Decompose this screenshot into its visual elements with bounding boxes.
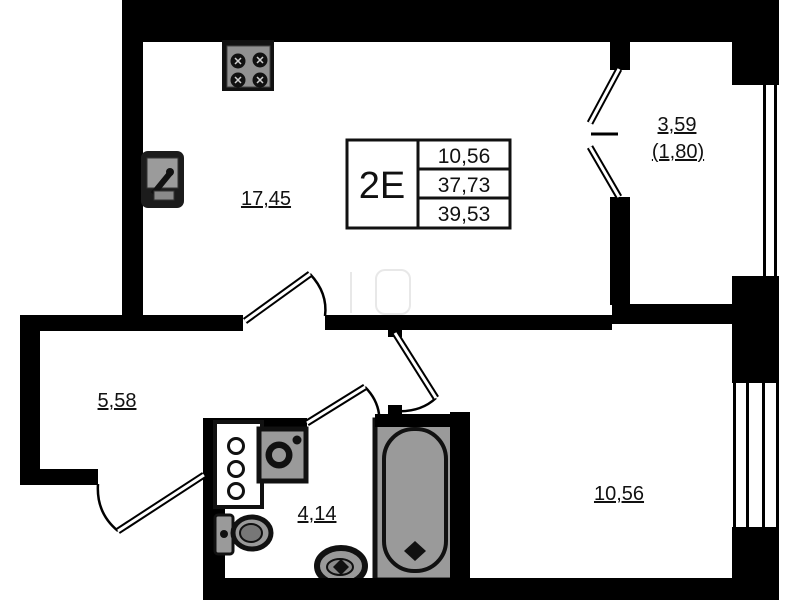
door-entrance [98,475,204,531]
wall-bedroom-door-stub-bottom [388,405,402,427]
wall-right-mid [732,276,779,383]
wall-top [122,0,779,42]
toilet-icon [215,515,271,554]
kitchen-sink-icon [141,151,184,208]
ghost-door-outline [351,270,410,314]
wall-hall-left [20,315,40,485]
wall-balcony-divider [610,197,630,305]
wall-bathroom-top-right [375,414,455,427]
door-hall-to-kitchen [245,274,325,321]
info-value-overall-area: 39,53 [438,203,491,226]
bedroom-window [733,383,779,527]
info-value-total-area: 37,73 [438,174,491,197]
unit-type-label: 2E [359,165,405,207]
wall-hall-bottom [20,469,98,485]
door-hall-to-bedroom [394,333,436,411]
wall-balcony-stub-top [610,42,630,70]
balcony-folding-door [590,69,619,197]
door-bathroom [307,387,379,423]
info-value-living-area: 10,56 [438,145,491,168]
floor-plan-drawing: 2E 10,56 37,73 39,53 17,45 5,58 4,14 10,… [0,0,799,600]
wall-balcony-bottom [612,304,733,324]
label-hallway-area: 5,58 [98,390,137,412]
wall-right-top [732,0,779,85]
washing-machine-icon [259,429,306,481]
wall-bottom [203,578,779,600]
label-balcony-reduced-area: (1,80) [652,141,704,163]
unit-info-box: 2E 10,56 37,73 39,53 [347,140,510,228]
wall-middle-right-segment [325,315,612,330]
label-bedroom-area: 10,56 [594,483,644,505]
wall-kitchen-left [122,0,143,330]
label-balcony-area: 3,59 [658,114,697,136]
bathtub [375,420,455,580]
stove-icon [222,40,274,91]
utility-shaft [215,422,262,507]
label-kitchen-living-area: 17,45 [241,188,291,210]
label-bathroom-area: 4,14 [298,503,337,525]
wall-bedroom-left [450,412,470,580]
balcony-glazing [763,84,777,277]
wall-middle-left-segment [20,315,243,331]
floor-plan: 2E 10,56 37,73 39,53 17,45 5,58 4,14 10,… [0,0,799,600]
